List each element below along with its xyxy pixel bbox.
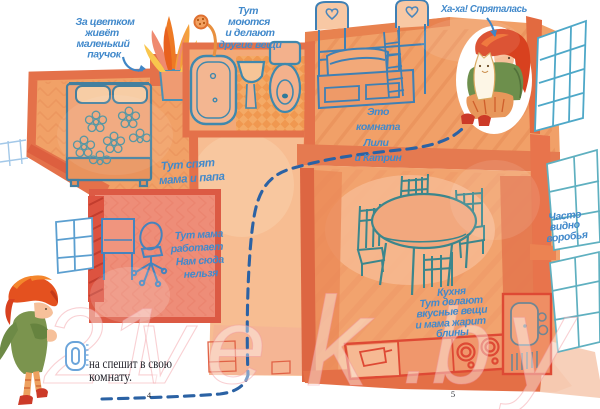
svg-text:паучок: паучок [87, 49, 121, 61]
svg-text:Это: Это [367, 106, 390, 118]
svg-text:комнату.: комнату. [89, 370, 132, 385]
svg-text:блины: блины [436, 326, 470, 340]
svg-text:нельзя: нельзя [183, 267, 218, 281]
svg-text:другие вещи: другие вещи [219, 39, 283, 51]
svg-text:5: 5 [451, 389, 455, 399]
svg-text:и делают: и делают [225, 27, 274, 39]
svg-text:Лили: Лили [363, 137, 390, 149]
svg-text:Ха-ха! Спряталась: Ха-ха! Спряталась [440, 3, 527, 15]
svg-text:комната: комната [356, 121, 401, 133]
svg-text:Нам сюда: Нам сюда [176, 254, 225, 269]
svg-text:и Катрин: и Катрин [355, 152, 403, 164]
